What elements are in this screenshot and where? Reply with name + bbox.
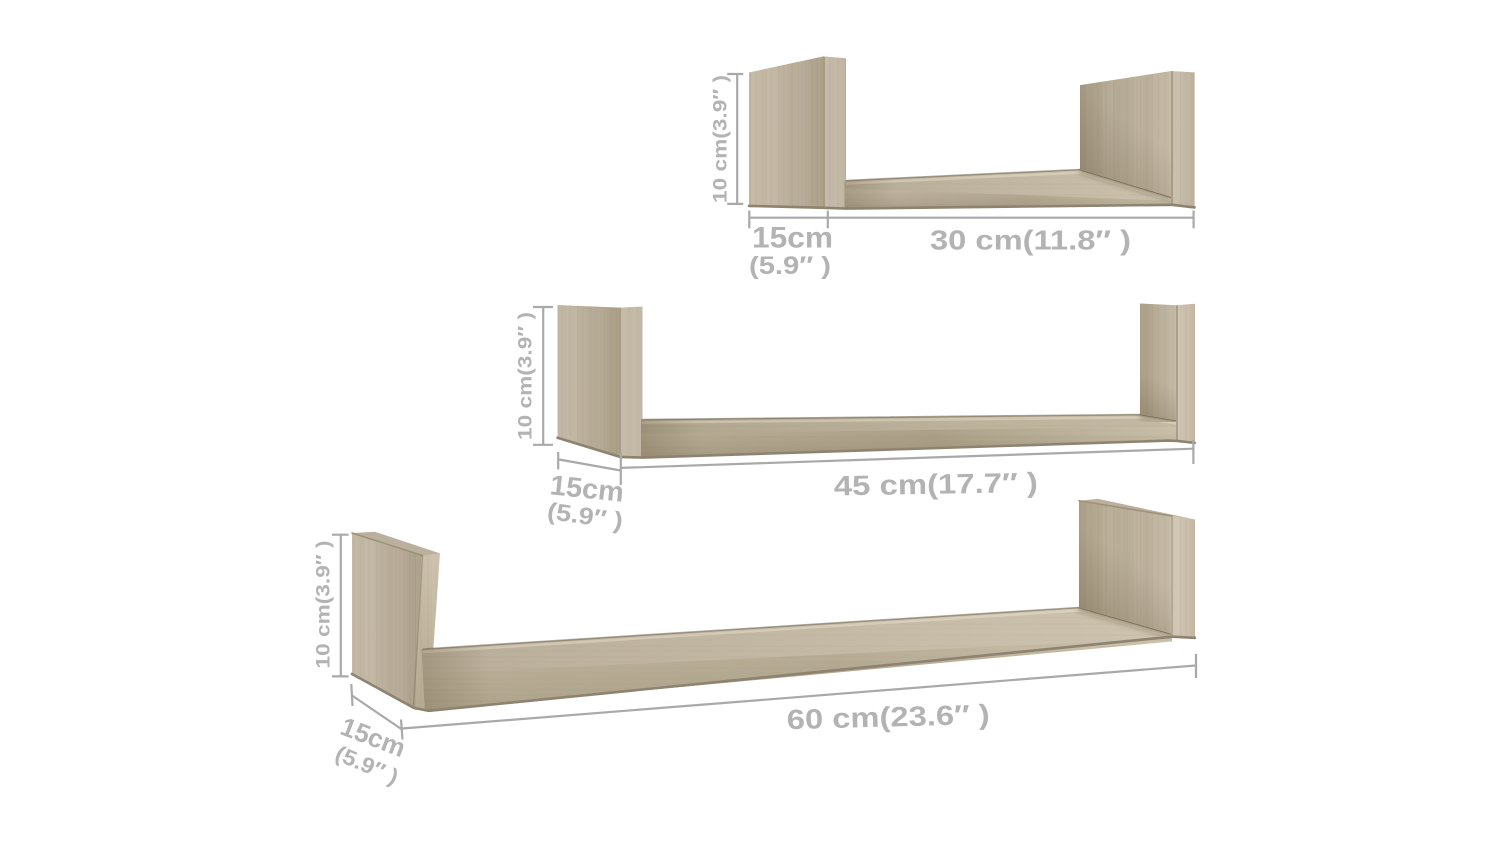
svg-text:10 cm(3.9″ ): 10 cm(3.9″ ): [711, 75, 732, 203]
svg-text:15cm: 15cm: [752, 222, 833, 255]
svg-text:60 cm(23.6″ ): 60 cm(23.6″ ): [786, 699, 990, 735]
svg-text:30 cm(11.8″ ): 30 cm(11.8″ ): [930, 224, 1131, 255]
svg-text:10 cm(3.9″ ): 10 cm(3.9″ ): [314, 541, 335, 669]
svg-text:45 cm(17.7″ ): 45 cm(17.7″ ): [834, 467, 1039, 502]
svg-text:(5.9″ ): (5.9″ ): [749, 252, 831, 280]
svg-text:10 cm(3.9″ ): 10 cm(3.9″ ): [516, 312, 537, 440]
